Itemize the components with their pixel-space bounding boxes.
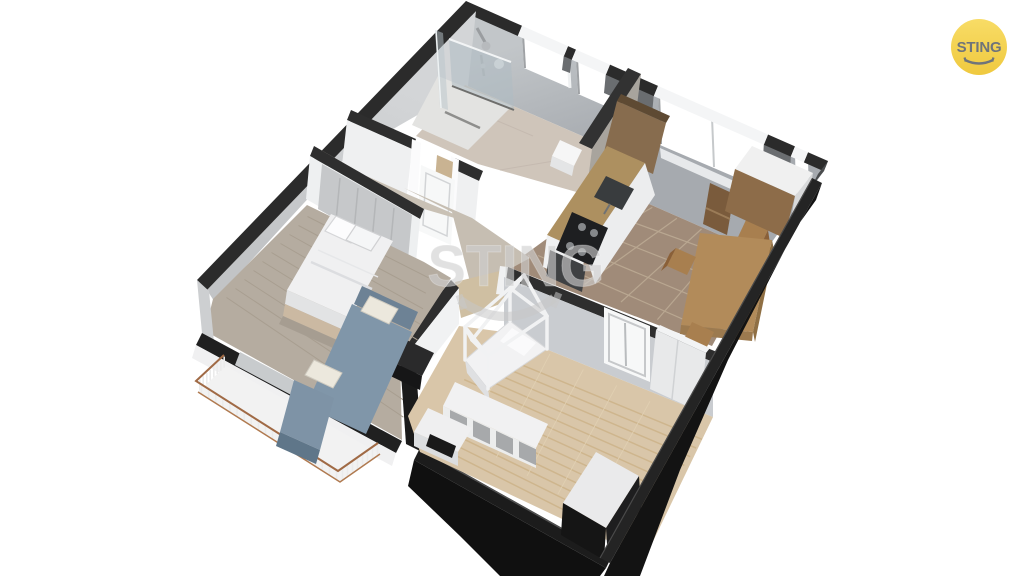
svg-text:STING: STING: [957, 39, 1002, 56]
svg-text:STING: STING: [427, 234, 604, 299]
